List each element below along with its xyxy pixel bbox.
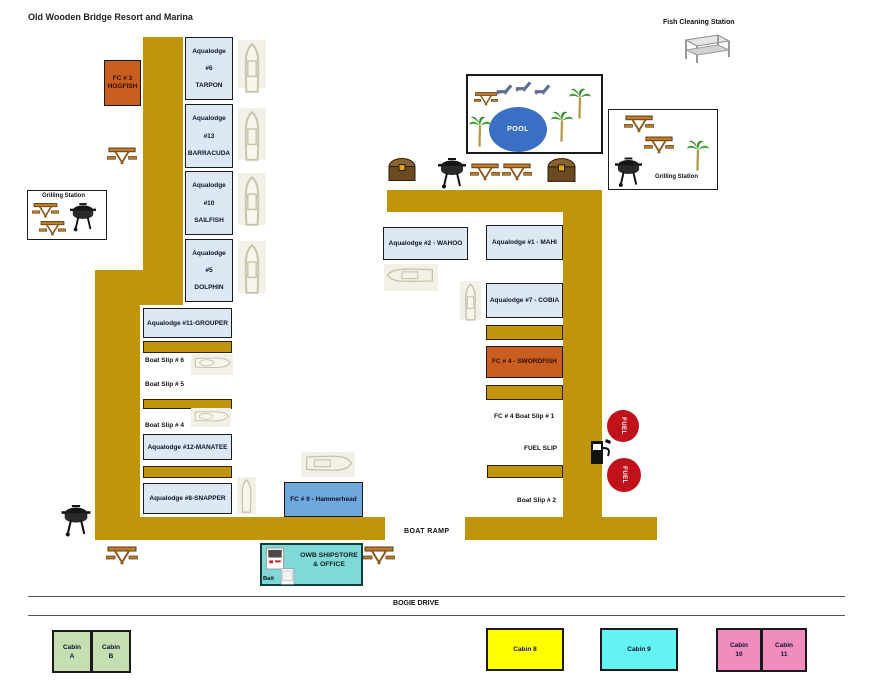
lodge-line: Aqualodge (192, 182, 226, 189)
treasure-chest-icon (547, 156, 576, 184)
dock-finger (487, 465, 563, 478)
fuel-badge: FUEL (607, 410, 639, 442)
fuel-slip-label: FUEL SLIP (524, 445, 557, 452)
cabin-9: Cabin 9 (600, 628, 678, 671)
lodge-line: Aqualodge (192, 115, 226, 122)
boat-ramp-label: BOAT RAMP (404, 528, 449, 535)
bogie-drive-label: BOGIE DRIVE (370, 600, 462, 607)
cabin-line: Cabin (775, 641, 793, 650)
road-line-bottom (28, 615, 845, 616)
lodge-label: Aqualodge #1 - MAHI (492, 239, 557, 246)
boat-slip-5-label: Boat Slip # 5 (145, 381, 184, 388)
picnic-table-icon (502, 161, 532, 182)
ice-machine-icon (278, 568, 297, 585)
bait-label: Bait (263, 576, 274, 582)
fc3-line2: HOGFISH (108, 83, 138, 91)
boat-slip-2-label: Boat Slip # 2 (517, 497, 556, 504)
lounge-chair-icon (495, 82, 513, 96)
fc9-hammerhead-box: FC # 9 - Hammerhead (284, 482, 363, 517)
cabin-label: Cabin 9 (627, 645, 650, 654)
lodge-label: Aqualodge #12-MANATEE (147, 444, 227, 451)
marina-map: Old Wooden Bridge Resort and Marina Fish… (0, 0, 874, 688)
boat-icon (238, 40, 266, 88)
fc3-line1: FC # 3 (113, 75, 133, 83)
grill-icon (60, 504, 92, 537)
cabin-8: Cabin 8 (486, 628, 564, 671)
cabin-line: Cabin (63, 643, 81, 652)
grilling-station-label: Grilling Station (42, 193, 85, 199)
shipstore-box: Bait OWB SHIPSTORE & OFFICE (260, 543, 363, 586)
lodge-line: #6 (205, 65, 212, 72)
pool-area-box: POOL (466, 74, 603, 154)
lodge-line: Aqualodge (192, 48, 226, 55)
grilling-station-label: Grilling Station (655, 174, 698, 180)
boat-icon (238, 108, 266, 160)
fc4-boat-slip-1-label: FC # 4 Boat Slip # 1 (494, 413, 554, 420)
boat-icon (238, 241, 266, 293)
cabin-10: Cabin 10 (716, 628, 762, 672)
road-line-top (28, 596, 845, 597)
lodge-label: Aqualodge #8-SNAPPER (149, 495, 225, 502)
cabin-11: Cabin 11 (761, 628, 807, 672)
lodge-line: Aqualodge (192, 250, 226, 257)
dock-bottom-right (465, 517, 657, 540)
lounge-chair-icon (514, 79, 532, 93)
lodge-line: #10 (204, 200, 215, 207)
dock-left-connector (95, 270, 183, 305)
lodge-line: #13 (204, 133, 215, 140)
aqualodge-7-cobia: Aqualodge #7 - COBIA (486, 283, 563, 318)
lodge-label: Aqualodge #11-GROUPER (147, 320, 228, 327)
picnic-table-icon (644, 134, 674, 155)
boat-slip-4-label: Boat Slip # 4 (145, 422, 184, 429)
fuel-pump-icon (589, 436, 613, 467)
shipstore-label: OWB SHIPSTORE & OFFICE (296, 551, 362, 569)
lodge-line: BARRACUDA (188, 150, 230, 157)
boat-icon (460, 281, 481, 320)
cabin-label: Cabin 8 (513, 645, 536, 654)
shipstore-line2: & OFFICE (296, 560, 362, 569)
aqualodge-5-dolphin: Aqualodge #5 DOLPHIN (185, 239, 233, 302)
aqualodge-13-barracuda: Aqualodge #13 BARRACUDA (185, 104, 233, 168)
cabin-line: 11 (781, 650, 788, 659)
aqualodge-12-manatee: Aqualodge #12-MANATEE (143, 434, 232, 460)
fuel-badge: FUEL (607, 458, 641, 492)
picnic-table-icon (32, 201, 59, 219)
dock-left-upper (143, 37, 183, 305)
ice-machine-icon (265, 547, 285, 570)
pool-label: POOL (507, 126, 529, 133)
shipstore-line1: OWB SHIPSTORE (296, 551, 362, 560)
fc4-swordfish-box: FC # 4 - SWORDFISH (486, 346, 563, 378)
dock-finger (143, 466, 232, 478)
aqualodge-8-snapper: Aqualodge #8-SNAPPER (143, 483, 232, 514)
grilling-station-right-box: Grilling Station (608, 109, 718, 190)
aqualodge-10-sailfish: Aqualodge #10 SAILFISH (185, 171, 233, 235)
lodge-line: SAILFISH (194, 217, 224, 224)
lodge-line: TARPON (196, 82, 223, 89)
palm-tree-icon (469, 112, 491, 152)
boat-icon (384, 264, 438, 291)
cabin-b: Cabin B (91, 630, 131, 673)
dock-left-lower (95, 305, 140, 517)
boat-icon (238, 173, 266, 225)
boat-icon (237, 477, 256, 514)
fuel-badge-label: FUEL (620, 417, 626, 435)
boat-icon (301, 452, 355, 477)
picnic-table-icon (624, 113, 654, 134)
fish-cleaning-table-icon (678, 31, 732, 65)
fc9-label: FC # 9 - Hammerhead (290, 496, 356, 503)
palm-tree-icon (551, 108, 573, 146)
grilling-station-left-box: Grilling Station (27, 190, 107, 240)
picnic-table-icon (363, 544, 395, 566)
cabin-line: Cabin (730, 641, 748, 650)
lodge-line: #5 (205, 267, 212, 274)
picnic-table-icon (106, 544, 138, 566)
cabin-line: B (109, 652, 114, 661)
aqualodge-6-tarpon: Aqualodge #6 TARPON (185, 37, 233, 100)
cabin-line: Cabin (102, 643, 120, 652)
dock-finger (486, 325, 563, 340)
dock-right-vertical (563, 190, 602, 517)
cabin-a: Cabin A (52, 630, 92, 673)
aqualodge-11-grouper: Aqualodge #11-GROUPER (143, 308, 232, 338)
dock-finger (486, 385, 563, 400)
fuel-badge-label: FUEL (621, 466, 627, 484)
cabin-line: 10 (735, 650, 742, 659)
lodge-label: Aqualodge #7 - COBIA (490, 297, 559, 304)
boat-slip-6-label: Boat Slip # 6 (145, 357, 184, 364)
lodge-line: DOLPHIN (194, 284, 223, 291)
picnic-table-icon (39, 219, 66, 237)
dock-finger (143, 341, 232, 353)
aqualodge-2-wahoo: Aqualodge #2 - WAHOO (383, 227, 468, 260)
dock-bottom-left (95, 517, 385, 540)
grill-icon (70, 202, 96, 232)
fish-cleaning-station-label: Fish Cleaning Station (663, 19, 735, 26)
fc4-label: FC # 4 - SWORDFISH (492, 358, 557, 366)
boat-icon (191, 408, 231, 427)
palm-tree-icon (687, 137, 709, 175)
pool: POOL (489, 107, 547, 152)
page-title: Old Wooden Bridge Resort and Marina (28, 12, 193, 22)
grill-icon (615, 156, 642, 188)
picnic-table-icon (107, 145, 137, 166)
aqualodge-1-mahi: Aqualodge #1 - MAHI (486, 225, 563, 260)
grill-icon (438, 157, 466, 189)
boat-icon (191, 354, 233, 375)
cabin-line: A (70, 652, 75, 661)
lounge-chair-icon (533, 82, 551, 96)
lodge-label: Aqualodge #2 - WAHOO (389, 240, 463, 247)
treasure-chest-icon (388, 156, 416, 183)
picnic-table-icon (470, 161, 500, 182)
fc3-hogfish-box: FC # 3 HOGFISH (104, 60, 141, 106)
